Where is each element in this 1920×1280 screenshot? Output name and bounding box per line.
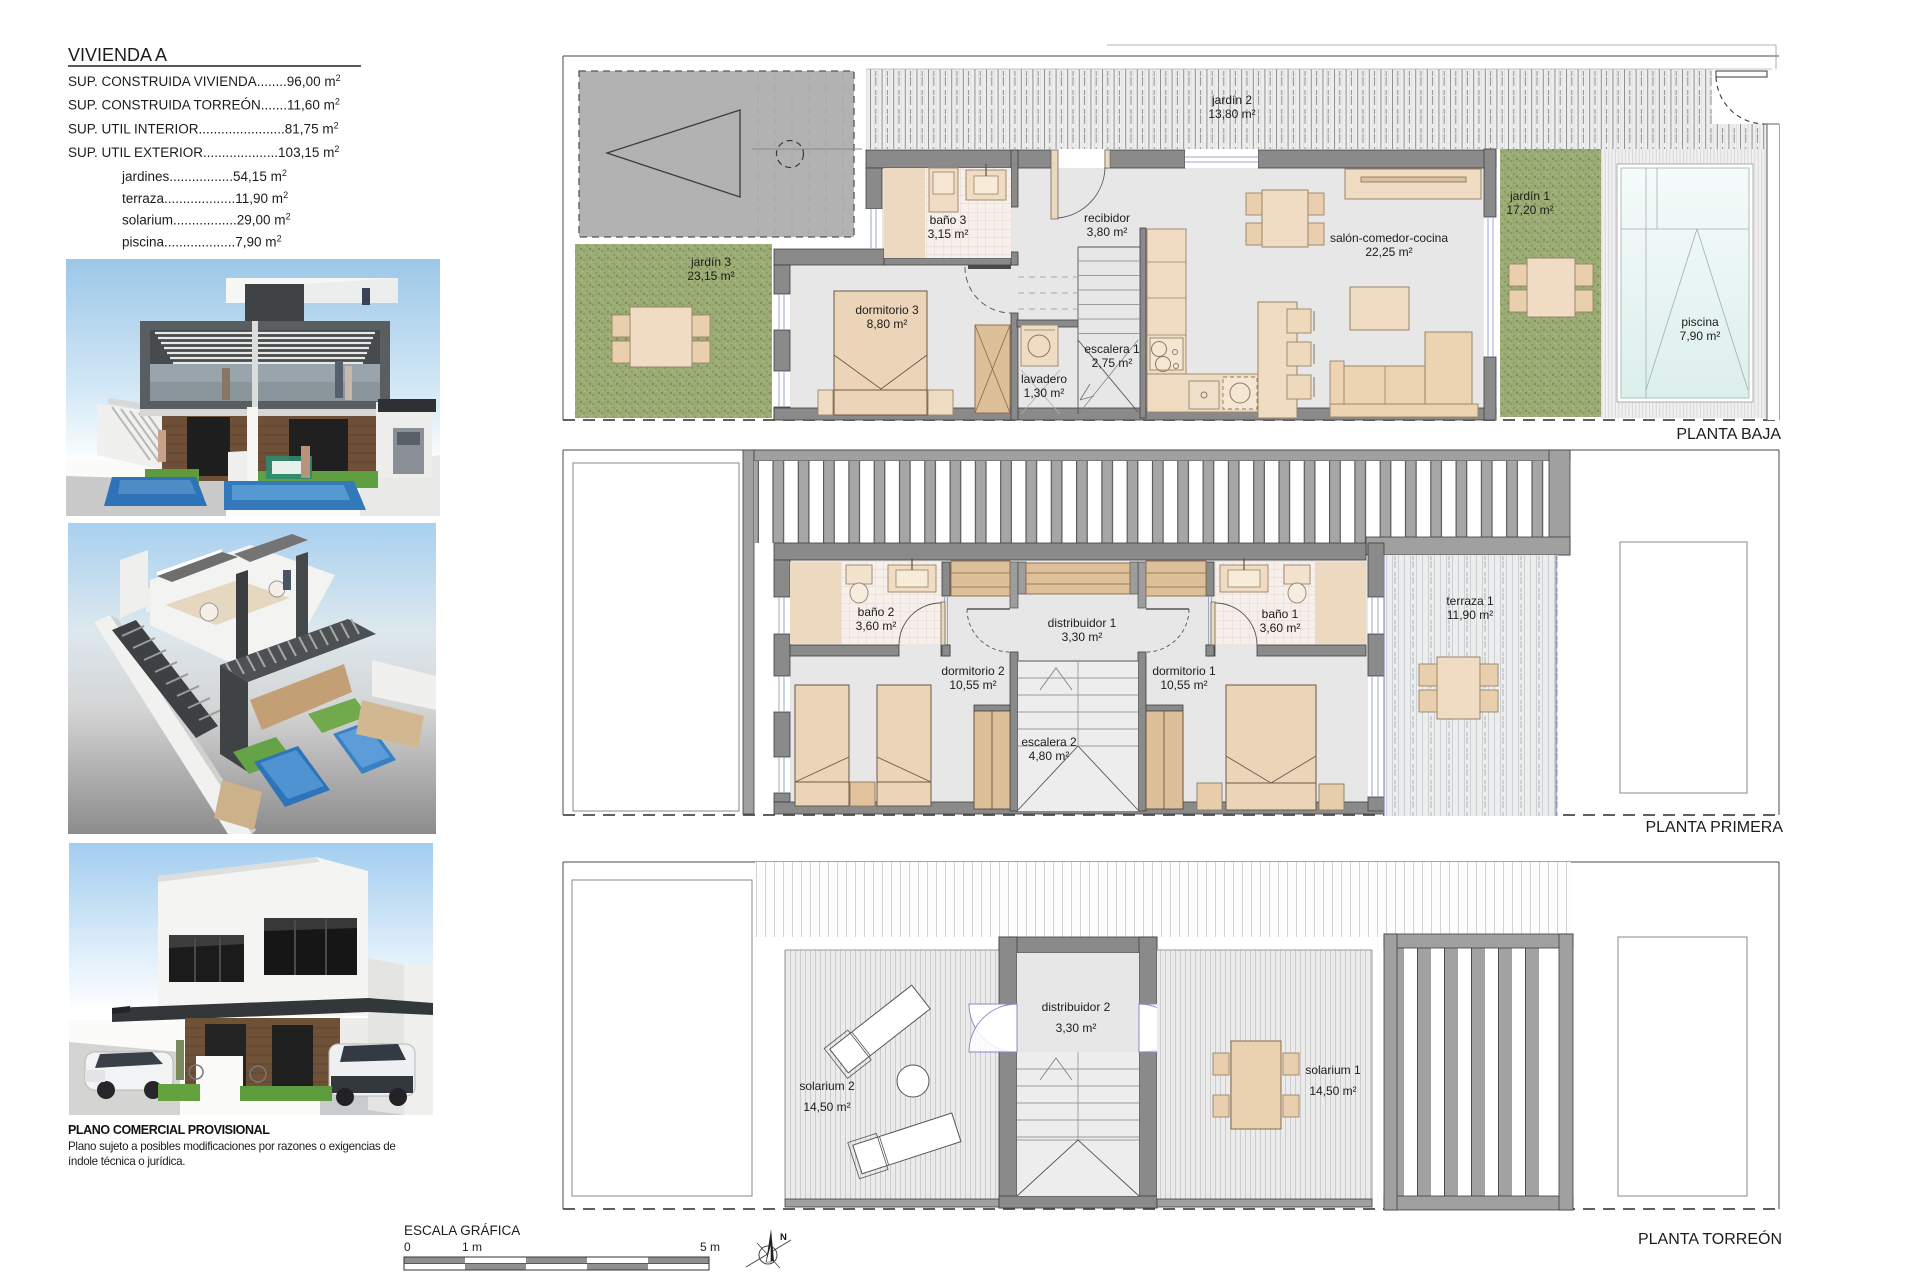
svg-text:ESCALA GRÁFICA: ESCALA GRÁFICA [404, 1223, 520, 1238]
svg-text:Plano sujeto a posibles modifi: Plano sujeto a posibles modificaciones p… [68, 1140, 396, 1153]
svg-text:1,30 m²: 1,30 m² [1024, 386, 1065, 400]
svg-text:terraza...................11,9: terraza...................11,90 m2 [122, 190, 288, 206]
svg-text:10,55 m²: 10,55 m² [1160, 678, 1207, 692]
svg-text:3,80 m²: 3,80 m² [1087, 225, 1128, 239]
svg-text:lavadero: lavadero [1021, 372, 1067, 386]
svg-text:11,90 m²: 11,90 m² [1447, 608, 1493, 622]
svg-text:escalera 2: escalera 2 [1021, 735, 1077, 749]
svg-text:baño 3: baño 3 [930, 213, 967, 227]
svg-text:8,80 m²: 8,80 m² [867, 317, 908, 331]
svg-text:salón-comedor-cocina: salón-comedor-cocina [1330, 231, 1448, 245]
svg-text:PLANTA BAJA: PLANTA BAJA [1676, 426, 1781, 443]
svg-text:recibidor: recibidor [1084, 211, 1130, 225]
svg-text:SUP. CONSTRUIDA TORREÓN.......: SUP. CONSTRUIDA TORREÓN.......11,60 m2 [68, 97, 340, 113]
svg-text:2,75 m²: 2,75 m² [1092, 356, 1133, 370]
svg-text:7,90 m²: 7,90 m² [1680, 329, 1721, 343]
svg-text:jardín 1: jardín 1 [1509, 189, 1550, 203]
svg-text:SUP. UTIL EXTERIOR............: SUP. UTIL EXTERIOR....................10… [68, 144, 339, 160]
svg-text:VIVIENDA A: VIVIENDA A [68, 45, 167, 65]
svg-text:jardín 3: jardín 3 [690, 255, 731, 269]
svg-text:1 m: 1 m [462, 1240, 482, 1254]
svg-text:22,25 m²: 22,25 m² [1365, 245, 1412, 259]
svg-text:PLANTA PRIMERA: PLANTA PRIMERA [1645, 819, 1783, 836]
svg-text:14,50 m²: 14,50 m² [1309, 1084, 1356, 1098]
svg-text:3,15 m²: 3,15 m² [928, 227, 969, 241]
svg-text:4,80 m²: 4,80 m² [1029, 749, 1070, 763]
svg-text:distribuidor 1: distribuidor 1 [1048, 616, 1117, 630]
svg-text:dormitorio 3: dormitorio 3 [855, 303, 919, 317]
svg-text:3,60 m²: 3,60 m² [856, 619, 897, 633]
svg-text:escalera 1: escalera 1 [1084, 342, 1140, 356]
svg-text:PLANTA TORREÓN: PLANTA TORREÓN [1638, 1229, 1782, 1248]
svg-text:10,55 m²: 10,55 m² [949, 678, 996, 692]
svg-text:solarium 2: solarium 2 [799, 1079, 855, 1093]
svg-text:PLANO COMERCIAL PROVISIONAL: PLANO COMERCIAL PROVISIONAL [68, 1123, 270, 1137]
svg-text:dormitorio 2: dormitorio 2 [941, 664, 1005, 678]
svg-text:piscina: piscina [1681, 315, 1719, 329]
svg-text:5 m: 5 m [700, 1240, 720, 1254]
svg-text:baño 2: baño 2 [858, 605, 895, 619]
svg-text:baño 1: baño 1 [1262, 607, 1299, 621]
svg-text:índole técnica o jurídica.: índole técnica o jurídica. [68, 1155, 185, 1168]
svg-text:terraza 1: terraza 1 [1446, 594, 1494, 608]
svg-text:3,60 m²: 3,60 m² [1260, 621, 1301, 635]
svg-text:N: N [780, 1232, 787, 1243]
svg-text:distribuidor 2: distribuidor 2 [1042, 1000, 1111, 1014]
svg-text:SUP. UTIL INTERIOR............: SUP. UTIL INTERIOR......................… [68, 120, 339, 136]
svg-text:13,80 m²: 13,80 m² [1208, 107, 1255, 121]
svg-text:jardín 2: jardín 2 [1211, 93, 1252, 107]
svg-text:0: 0 [404, 1240, 411, 1254]
svg-text:3,30 m²: 3,30 m² [1062, 630, 1103, 644]
svg-text:3,30 m²: 3,30 m² [1056, 1021, 1097, 1035]
svg-text:17,20 m²: 17,20 m² [1506, 203, 1553, 217]
svg-text:solarium 1: solarium 1 [1305, 1063, 1361, 1077]
svg-text:dormitorio 1: dormitorio 1 [1152, 664, 1216, 678]
svg-text:jardines.................54,15: jardines.................54,15 m2 [121, 168, 287, 184]
svg-text:14,50 m²: 14,50 m² [803, 1100, 850, 1114]
svg-text:SUP. CONSTRUIDA VIVIENDA......: SUP. CONSTRUIDA VIVIENDA........96,00 m2 [68, 73, 341, 89]
svg-text:23,15 m²: 23,15 m² [687, 269, 734, 283]
svg-text:piscina...................7,90: piscina...................7,90 m2 [122, 233, 282, 249]
svg-text:solarium.................29,00: solarium.................29,00 m2 [122, 212, 291, 228]
